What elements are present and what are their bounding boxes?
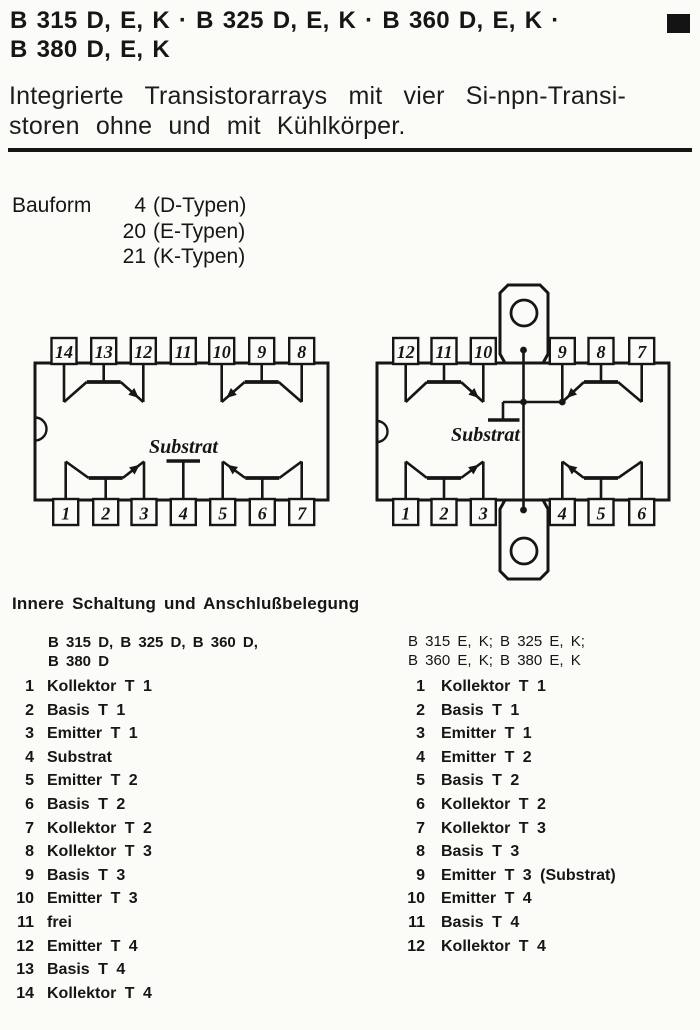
pin-function-label: Emitter T 3: [47, 890, 138, 908]
pin-assignment-row: 6Kollektor T 2: [398, 796, 616, 820]
pin-number: 4: [398, 749, 425, 767]
pin-function-label: Emitter T 3 (Substrat): [441, 867, 616, 885]
dip14-package-diagram: 1413121110981234567Substrat: [35, 338, 328, 525]
pin-box-number: 10: [213, 342, 231, 362]
pin-assignment-row: 3Emitter T 1: [8, 725, 152, 749]
datasheet-page: B 315 D, E, K · B 325 D, E, K · B 360 D,…: [0, 0, 700, 1030]
bauform-number: 21: [120, 245, 146, 269]
pin-assignment-row: 5Basis T 2: [398, 772, 616, 796]
pin-box-number: 7: [297, 504, 307, 524]
pin-number: 10: [398, 890, 425, 908]
right-header-line-1: B 315 E, K; B 325 E, K;: [408, 633, 585, 652]
pin-function-label: Basis T 2: [441, 772, 519, 790]
pin-function-label: Emitter T 2: [441, 749, 532, 767]
pin-assignment-row: 12Kollektor T 4: [398, 938, 616, 962]
pin-function-label: frei: [47, 914, 72, 932]
pin-box-number: 8: [597, 342, 606, 362]
left-column-type-header: B 315 D, B 325 D, B 360 D, B 380 D: [48, 634, 258, 671]
pin-assignment-row: 8Kollektor T 3: [8, 843, 152, 867]
description-line-1: Integrierte Transistorarrays mit vier Si…: [9, 82, 626, 111]
pin-function-label: Emitter T 4: [441, 890, 532, 908]
pin-number: 14: [8, 985, 34, 1003]
bauform-type: (K-Typen): [153, 245, 245, 269]
ic-package-diagrams: 1413121110981234567Substrat 121110987123…: [0, 275, 700, 585]
pin-number: 3: [398, 725, 425, 743]
pin-assignment-row: 7Kollektor T 2: [8, 820, 152, 844]
substrate-label: Substrat: [451, 424, 521, 446]
pin-number: 9: [8, 867, 34, 885]
pin-assignment-list-d-types: 1Kollektor T 12Basis T 13Emitter T 14Sub…: [8, 678, 152, 1008]
pin-box-number: 6: [258, 504, 267, 524]
pin-number: 4: [8, 749, 34, 767]
pin-assignment-row: 1Kollektor T 1: [8, 678, 152, 702]
pin-box-number: 1: [61, 504, 70, 524]
horizontal-rule: [8, 148, 692, 152]
junction-dot: [559, 399, 566, 406]
pin-number: 8: [398, 843, 425, 861]
pin-assignment-row: 4Substrat: [8, 749, 152, 773]
pin-assignment-row: 5Emitter T 2: [8, 772, 152, 796]
junction-dot: [520, 399, 527, 406]
bauform-number: 4: [120, 194, 146, 218]
pin-assignment-row: 3Emitter T 1: [398, 725, 616, 749]
bauform-row: 20(E-Typen): [120, 220, 246, 246]
pin-number: 2: [398, 702, 425, 720]
pin-box-number: 4: [178, 504, 188, 524]
bauform-row: 4(D-Typen): [120, 194, 246, 220]
pin-function-label: Substrat: [47, 749, 112, 767]
bauform-number: 20: [120, 220, 146, 244]
pin-assignment-row: 9Emitter T 3 (Substrat): [398, 867, 616, 891]
bauform-value-list: 4(D-Typen)20(E-Typen)21(K-Typen): [120, 194, 246, 271]
pin-number: 1: [398, 678, 425, 696]
page-title-line-1: B 315 D, E, K · B 325 D, E, K · B 360 D,…: [10, 7, 560, 35]
pin-assignment-row: 1Kollektor T 1: [398, 678, 616, 702]
bauform-label: Bauform: [12, 194, 91, 218]
pin-assignment-row: 14Kollektor T 4: [8, 985, 152, 1009]
pin-box-number: 2: [439, 504, 449, 524]
pin-assignment-row: 10Emitter T 4: [398, 890, 616, 914]
package-body: [35, 363, 328, 500]
pin-function-label: Basis T 3: [441, 843, 519, 861]
pin-number: 3: [8, 725, 34, 743]
pin-assignment-row: 11Basis T 4: [398, 914, 616, 938]
pin-assignment-row: 8Basis T 3: [398, 843, 616, 867]
pin-box-number: 1: [401, 504, 410, 524]
left-header-line-1: B 315 D, B 325 D, B 360 D,: [48, 634, 258, 653]
pin-box-number: 3: [139, 504, 149, 524]
pin-function-label: Emitter T 2: [47, 772, 138, 790]
pin-assignment-row: 4Emitter T 2: [398, 749, 616, 773]
pin-function-label: Basis T 3: [47, 867, 125, 885]
pin-number: 12: [8, 938, 34, 956]
pin-number: 11: [398, 914, 425, 932]
pin-function-label: Basis T 1: [47, 702, 125, 720]
pin-number: 13: [8, 961, 34, 979]
pin-number: 9: [398, 867, 425, 885]
pin-number: 7: [8, 820, 34, 838]
pin-assignment-row: 11frei: [8, 914, 152, 938]
pin-assignment-row: 12Emitter T 4: [8, 938, 152, 962]
pin-box-number: 12: [134, 342, 152, 362]
pin-assignment-row: 2Basis T 1: [8, 702, 152, 726]
pin-number: 2: [8, 702, 34, 720]
pin-box-number: 2: [100, 504, 110, 524]
junction-dot: [520, 347, 527, 354]
pin-function-label: Kollektor T 4: [47, 985, 152, 1003]
pin-box-number: 14: [55, 342, 73, 362]
pin-box-number: 12: [397, 342, 415, 362]
page-title-line-2: B 380 D, E, K: [10, 36, 170, 64]
bauform-type: (E-Typen): [153, 220, 245, 244]
pin-box-number: 5: [218, 504, 227, 524]
pin-box-number: 11: [175, 342, 192, 362]
pin-number: 7: [398, 820, 425, 838]
pin-number: 6: [8, 796, 34, 814]
right-column-type-header: B 315 E, K; B 325 E, K; B 360 E, K; B 38…: [408, 633, 585, 670]
pin-function-label: Kollektor T 4: [441, 938, 546, 956]
pin-function-label: Kollektor T 2: [441, 796, 546, 814]
pin-assignment-row: 10Emitter T 3: [8, 890, 152, 914]
pin-box-number: 9: [558, 342, 567, 362]
pin-box-number: 13: [95, 342, 113, 362]
pin-number: 1: [8, 678, 34, 696]
mounting-hole: [511, 538, 537, 564]
left-header-line-2: B 380 D: [48, 653, 258, 672]
junction-dot: [520, 507, 527, 514]
pin-box-number: 8: [297, 342, 306, 362]
pin-assignment-row: 2Basis T 1: [398, 702, 616, 726]
pin-box-number: 9: [257, 342, 266, 362]
pin-assignment-row: 9Basis T 3: [8, 867, 152, 891]
pin-function-label: Emitter T 1: [441, 725, 532, 743]
pinout-section-heading: Innere Schaltung und Anschlußbelegung: [12, 594, 359, 614]
substrate-label: Substrat: [149, 436, 219, 458]
pin-function-label: Kollektor T 1: [47, 678, 152, 696]
pin-function-label: Basis T 4: [47, 961, 125, 979]
pin-function-label: Kollektor T 3: [441, 820, 546, 838]
pin-number: 5: [8, 772, 34, 790]
pin-assignment-row: 13Basis T 4: [8, 961, 152, 985]
right-header-line-2: B 360 E, K; B 380 E, K: [408, 652, 585, 671]
pin-box-number: 5: [597, 504, 606, 524]
pin-assignment-row: 6Basis T 2: [8, 796, 152, 820]
pin-box-number: 6: [637, 504, 646, 524]
mounting-hole: [511, 300, 537, 326]
description-line-2: storen ohne und mit Kühlkörper.: [9, 112, 406, 141]
pin-box-number: 7: [637, 342, 647, 362]
pin-number: 12: [398, 938, 425, 956]
black-square-marker-icon: [667, 14, 690, 33]
pin-function-label: Emitter T 1: [47, 725, 138, 743]
pin-number: 6: [398, 796, 425, 814]
pin-box-number: 11: [435, 342, 452, 362]
pin-box-number: 10: [474, 342, 492, 362]
bauform-row: 21(K-Typen): [120, 245, 246, 271]
pin-function-label: Basis T 1: [441, 702, 519, 720]
pin-box-number: 3: [478, 504, 488, 524]
dip12-heatsink-package-diagram: 121110987123456Substrat: [377, 285, 669, 579]
pin-number: 8: [8, 843, 34, 861]
pin-assignment-row: 7Kollektor T 3: [398, 820, 616, 844]
pin-function-label: Emitter T 4: [47, 938, 138, 956]
pin-box-number: 4: [557, 504, 567, 524]
pin-function-label: Basis T 2: [47, 796, 125, 814]
pin-function-label: Basis T 4: [441, 914, 519, 932]
pin-number: 10: [8, 890, 34, 908]
pin-function-label: Kollektor T 3: [47, 843, 152, 861]
pin-assignment-list-ek-types: 1Kollektor T 12Basis T 13Emitter T 14Emi…: [398, 678, 616, 961]
bauform-type: (D-Typen): [153, 194, 246, 218]
pin-number: 11: [8, 914, 34, 932]
pin-function-label: Kollektor T 1: [441, 678, 546, 696]
pin-function-label: Kollektor T 2: [47, 820, 152, 838]
pin-number: 5: [398, 772, 425, 790]
